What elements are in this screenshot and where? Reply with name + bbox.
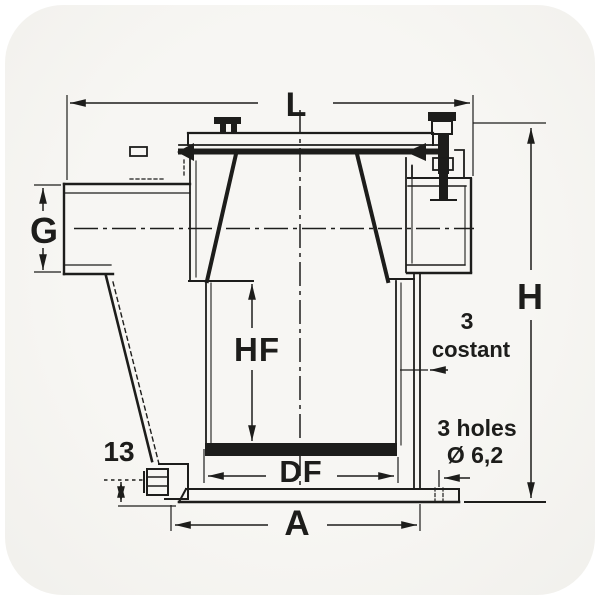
note-mounting-holes-diameter: Ø 6,2 — [447, 442, 503, 468]
label-inlet-thread: G — [30, 210, 58, 251]
body-wall-right — [406, 158, 420, 489]
note-wall-thickness-word: costant — [432, 337, 511, 362]
body-wall-left — [190, 157, 196, 281]
lid-bolt — [214, 117, 241, 133]
funnel-cone — [189, 154, 414, 281]
label-filter-diameter: DF — [279, 454, 322, 489]
label-base-width: A — [284, 504, 309, 543]
cover-lid — [130, 117, 446, 179]
label-drain-offset: 13 — [103, 436, 134, 467]
clamp-bolt — [406, 112, 464, 200]
note-mounting-holes-count: 3 holes — [437, 415, 516, 441]
strainer-section-diagram: L G H HF DF A 13 3 costant 3 holes Ø 6,2 — [0, 0, 600, 600]
base-flange — [179, 488, 459, 502]
label-overall-height: H — [517, 276, 543, 317]
lid-hinge — [130, 143, 194, 179]
label-filter-height: HF — [234, 331, 280, 368]
filter-basket — [205, 281, 401, 456]
drain-plug — [144, 464, 188, 499]
label-overall-length: L — [286, 86, 307, 124]
leader-mounting-hole — [439, 470, 470, 487]
note-wall-thickness-value: 3 — [461, 308, 474, 334]
